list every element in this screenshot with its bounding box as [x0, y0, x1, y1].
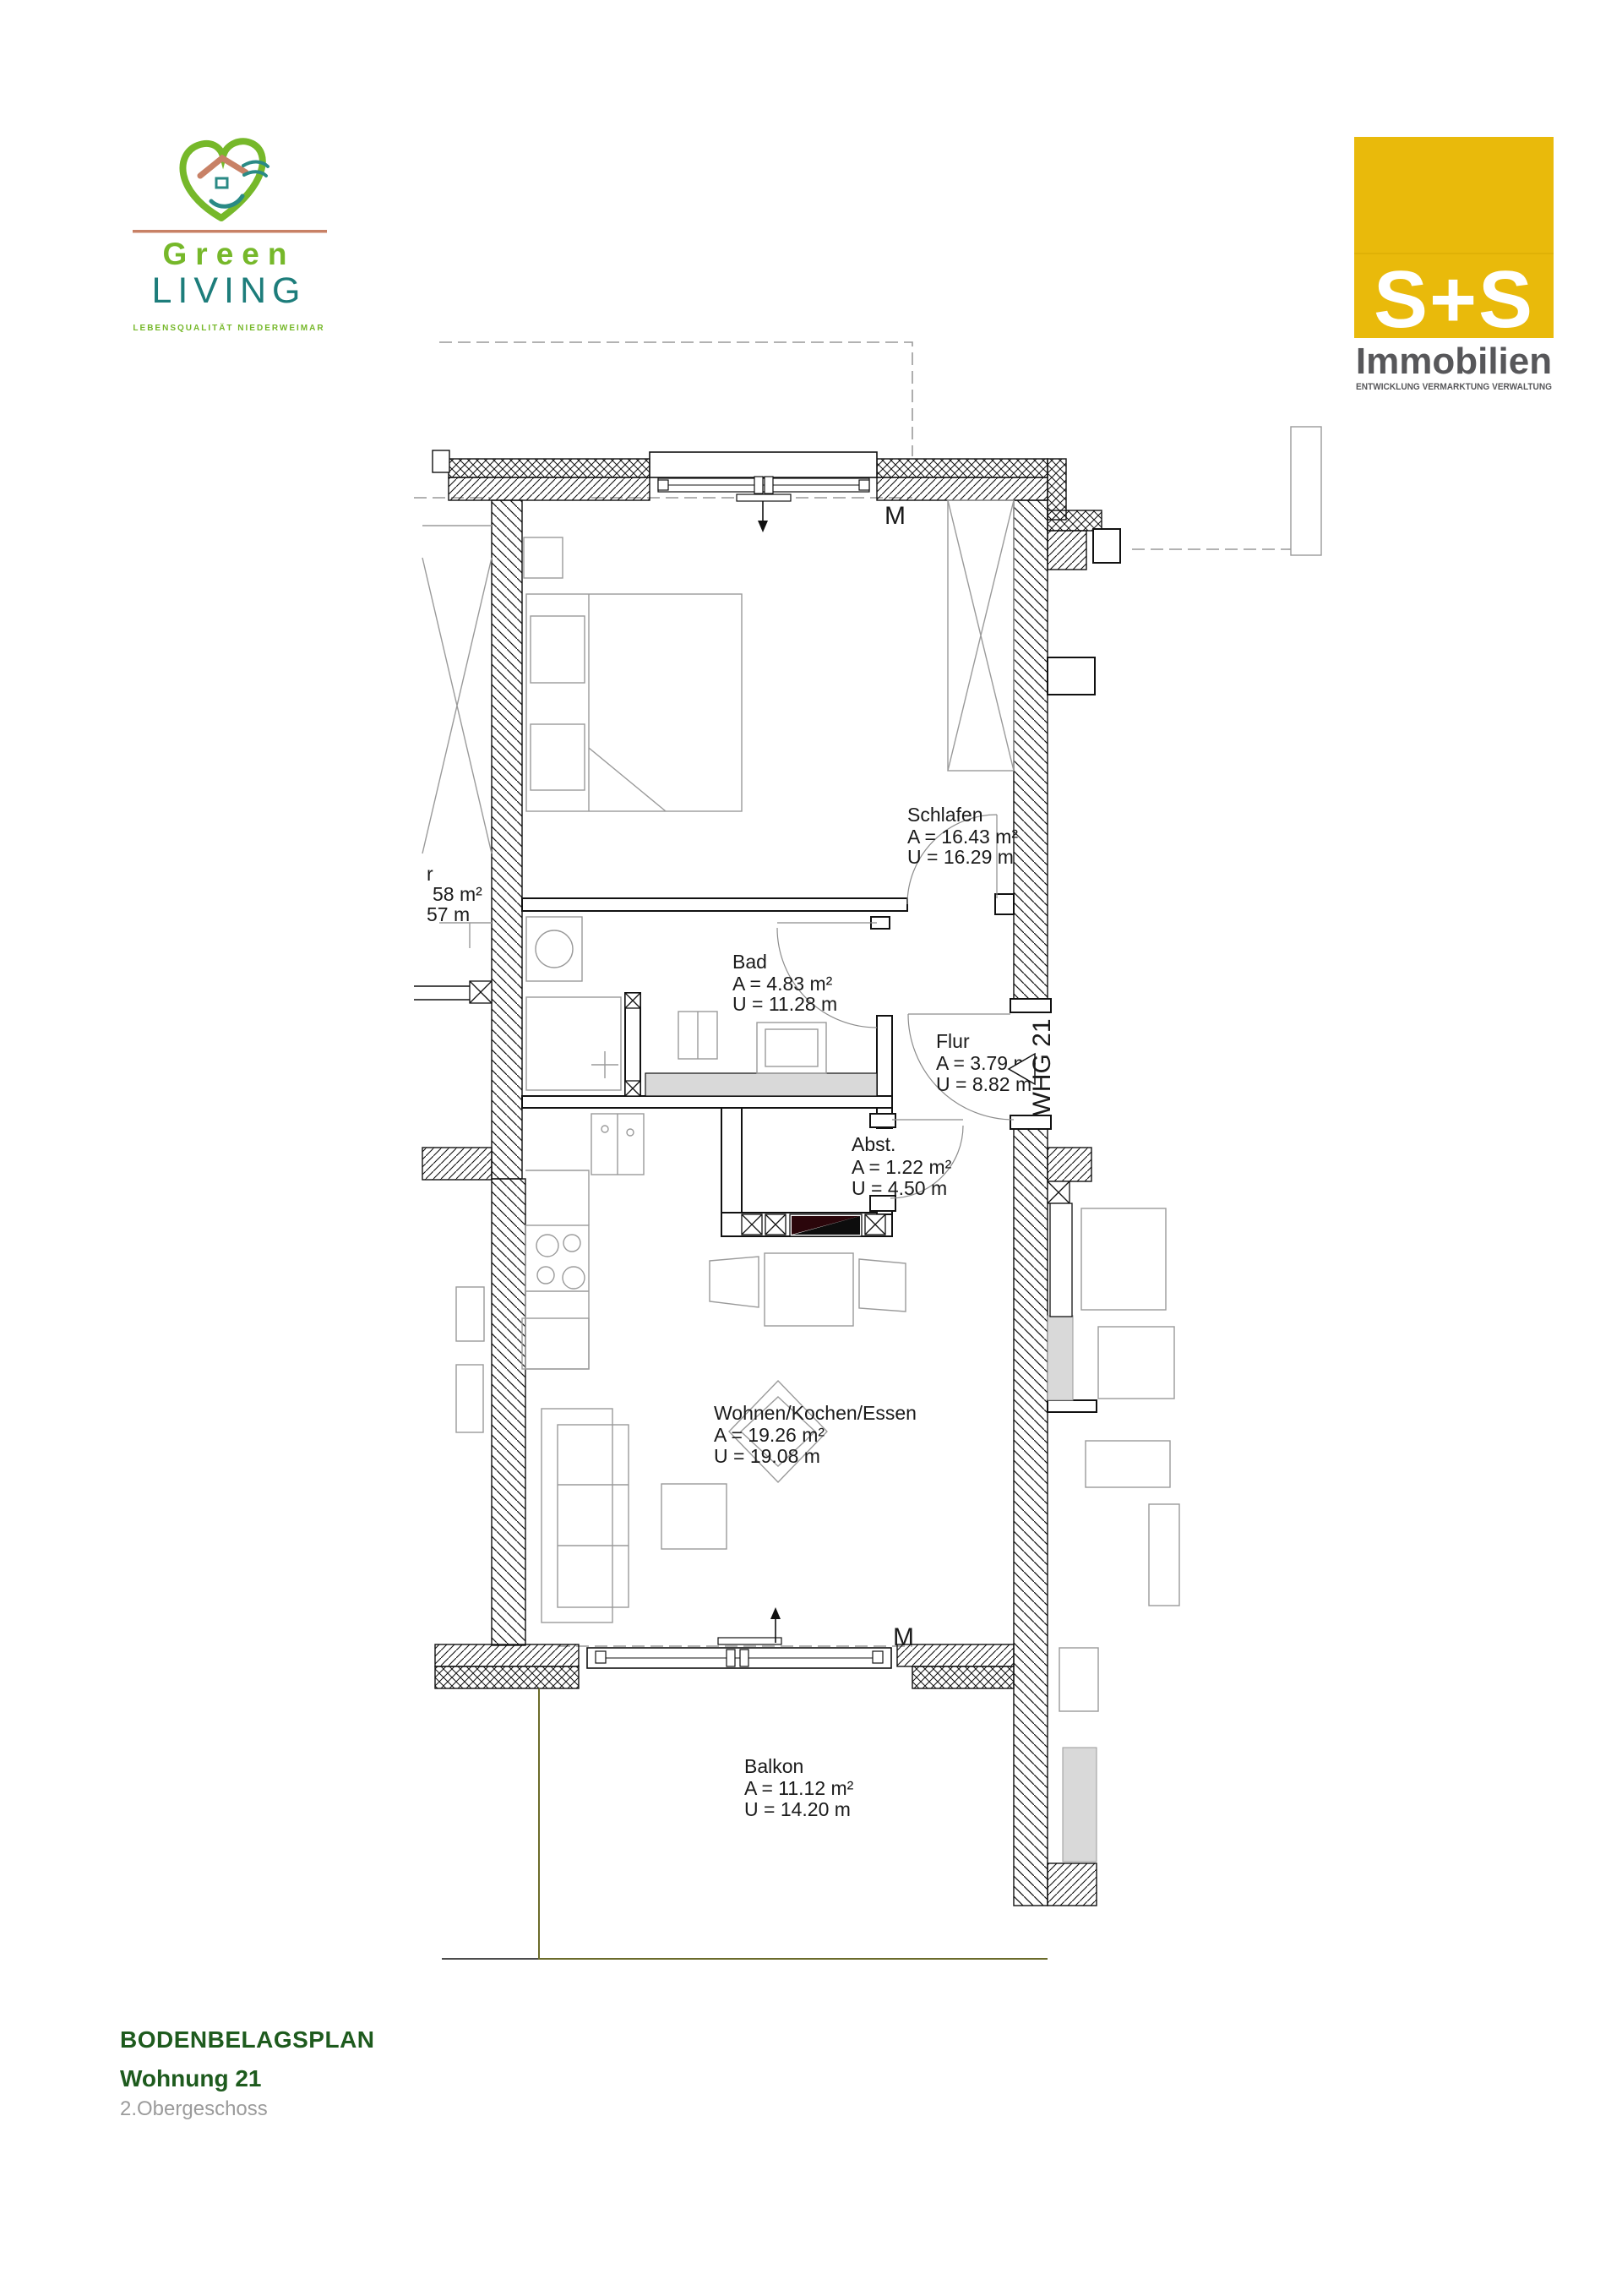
- nightstand: [531, 724, 585, 790]
- sideboard: [522, 1318, 589, 1369]
- kitchen-sink: [591, 1114, 644, 1175]
- svg-text:Abst.: Abst.: [852, 1133, 895, 1155]
- dining-table: [765, 1253, 853, 1326]
- ss-immobilien-logo: S+S Immobilien ENTWICKLUNG VERMARKTUNG V…: [1354, 137, 1554, 392]
- nightstand: [531, 616, 585, 683]
- room-label-bad: Bad A = 4.83 m² U = 11.28 m: [732, 951, 837, 1015]
- balcony-outline: [442, 1688, 1048, 1959]
- house-door-icon: [216, 178, 227, 188]
- marker-m-top: M: [884, 502, 906, 530]
- wardrobe: [948, 500, 1014, 771]
- svg-text:U = 8.82 m: U = 8.82 m: [936, 1073, 1031, 1095]
- bad-prewall-shaded: [645, 1073, 877, 1096]
- green-living-logo: Green LIVING LEBENSQUALITÄT NIEDERWEIMAR: [133, 141, 327, 333]
- swoosh-icon: [244, 172, 266, 176]
- svg-text:58 m²: 58 m²: [433, 883, 482, 905]
- green-living-tagline: LEBENSQUALITÄT NIEDERWEIMAR: [133, 322, 324, 333]
- sofa: [542, 1409, 629, 1622]
- unit-tag: WHG 21: [1028, 1018, 1056, 1115]
- coffee-table: [661, 1484, 727, 1549]
- washbasin: [757, 1023, 826, 1073]
- svg-text:A = 11.12 m²: A = 11.12 m²: [744, 1777, 854, 1799]
- room-label-schlafen: Schlafen A = 16.43 m² U = 16.29 m: [907, 804, 1018, 868]
- furniture: [422, 427, 1321, 1711]
- room-label-abst: Abst. A = 1.22 m² U = 4.50 m: [852, 1133, 952, 1199]
- kitchen-counter: [525, 1170, 589, 1369]
- bathroom-cabinet: [678, 1012, 717, 1059]
- chair: [710, 1257, 759, 1307]
- svg-text:Wohnen/Kochen/Essen: Wohnen/Kochen/Essen: [714, 1402, 917, 1424]
- neighbor-shaded-strip: [1063, 1748, 1097, 1862]
- svg-text:U = 4.50 m: U = 4.50 m: [852, 1177, 947, 1199]
- marker-m-bottom: M: [893, 1623, 914, 1651]
- washing-machine: [526, 917, 582, 981]
- ss-logo-text: S+S: [1374, 254, 1534, 345]
- room-label-wohnen: Wohnen/Kochen/Essen A = 19.26 m² U = 19.…: [714, 1402, 917, 1467]
- svg-text:U = 16.29 m: U = 16.29 m: [907, 846, 1014, 868]
- window-bottom: [587, 1607, 891, 1668]
- svg-text:Bad: Bad: [732, 951, 767, 973]
- plan-type-title: BODENBELAGSPLAN: [120, 2026, 375, 2053]
- logo-divider: [133, 230, 327, 233]
- svg-text:r: r: [427, 863, 433, 885]
- unit-title: Wohnung 21: [120, 2065, 261, 2091]
- svg-text:57 m: 57 m: [427, 903, 470, 925]
- svg-text:A = 16.43 m²: A = 16.43 m²: [907, 826, 1018, 848]
- svg-text:Schlafen: Schlafen: [907, 804, 983, 826]
- svg-text:Flur: Flur: [936, 1030, 970, 1052]
- neighbor-label-fragment: r 58 m² 57 m: [427, 863, 482, 925]
- green-living-wordmark-1: Green: [163, 237, 296, 271]
- shaft-symbol: [790, 1214, 862, 1236]
- neighbor-door-lines: [414, 986, 470, 1000]
- room-label-balkon: Balkon A = 11.12 m² U = 14.20 m: [744, 1755, 854, 1820]
- ss-company-name: Immobilien: [1356, 341, 1552, 382]
- svg-text:A = 1.22 m²: A = 1.22 m²: [852, 1156, 952, 1178]
- floor-subtitle: 2.Obergeschoss: [120, 2097, 268, 2120]
- neighbor-wardrobe: [422, 558, 492, 854]
- svg-text:U = 11.28 m: U = 11.28 m: [732, 993, 837, 1015]
- exterior-walls: [422, 450, 1102, 1906]
- title-block: BODENBELAGSPLAN Wohnung 21 2.Obergeschos…: [120, 2026, 375, 2120]
- svg-text:Balkon: Balkon: [744, 1755, 803, 1777]
- svg-text:A = 4.83 m²: A = 4.83 m²: [732, 973, 833, 995]
- ss-tagline: ENTWICKLUNG VERMARKTUNG VERWALTUNG: [1356, 382, 1552, 392]
- chair: [859, 1259, 906, 1312]
- svg-text:A = 19.26 m²: A = 19.26 m²: [714, 1424, 825, 1446]
- svg-text:U = 19.08 m: U = 19.08 m: [714, 1445, 820, 1467]
- bedroom-shelf: [524, 537, 563, 578]
- green-living-wordmark-2: LIVING: [152, 270, 307, 311]
- floor-plan: Schlafen A = 16.43 m² U = 16.29 m Bad A …: [414, 342, 1321, 1959]
- bed: [526, 594, 742, 811]
- neighbor-shaded-strip: [1048, 1316, 1073, 1400]
- plan-sheet: Green LIVING LEBENSQUALITÄT NIEDERWEIMAR…: [0, 0, 1622, 2296]
- plan-canvas: Green LIVING LEBENSQUALITÄT NIEDERWEIMAR…: [0, 0, 1622, 2296]
- svg-text:U = 14.20 m: U = 14.20 m: [744, 1798, 851, 1820]
- shower: [526, 997, 621, 1090]
- window-top: [650, 452, 877, 532]
- neighbor-door-leaf: [1050, 1203, 1072, 1317]
